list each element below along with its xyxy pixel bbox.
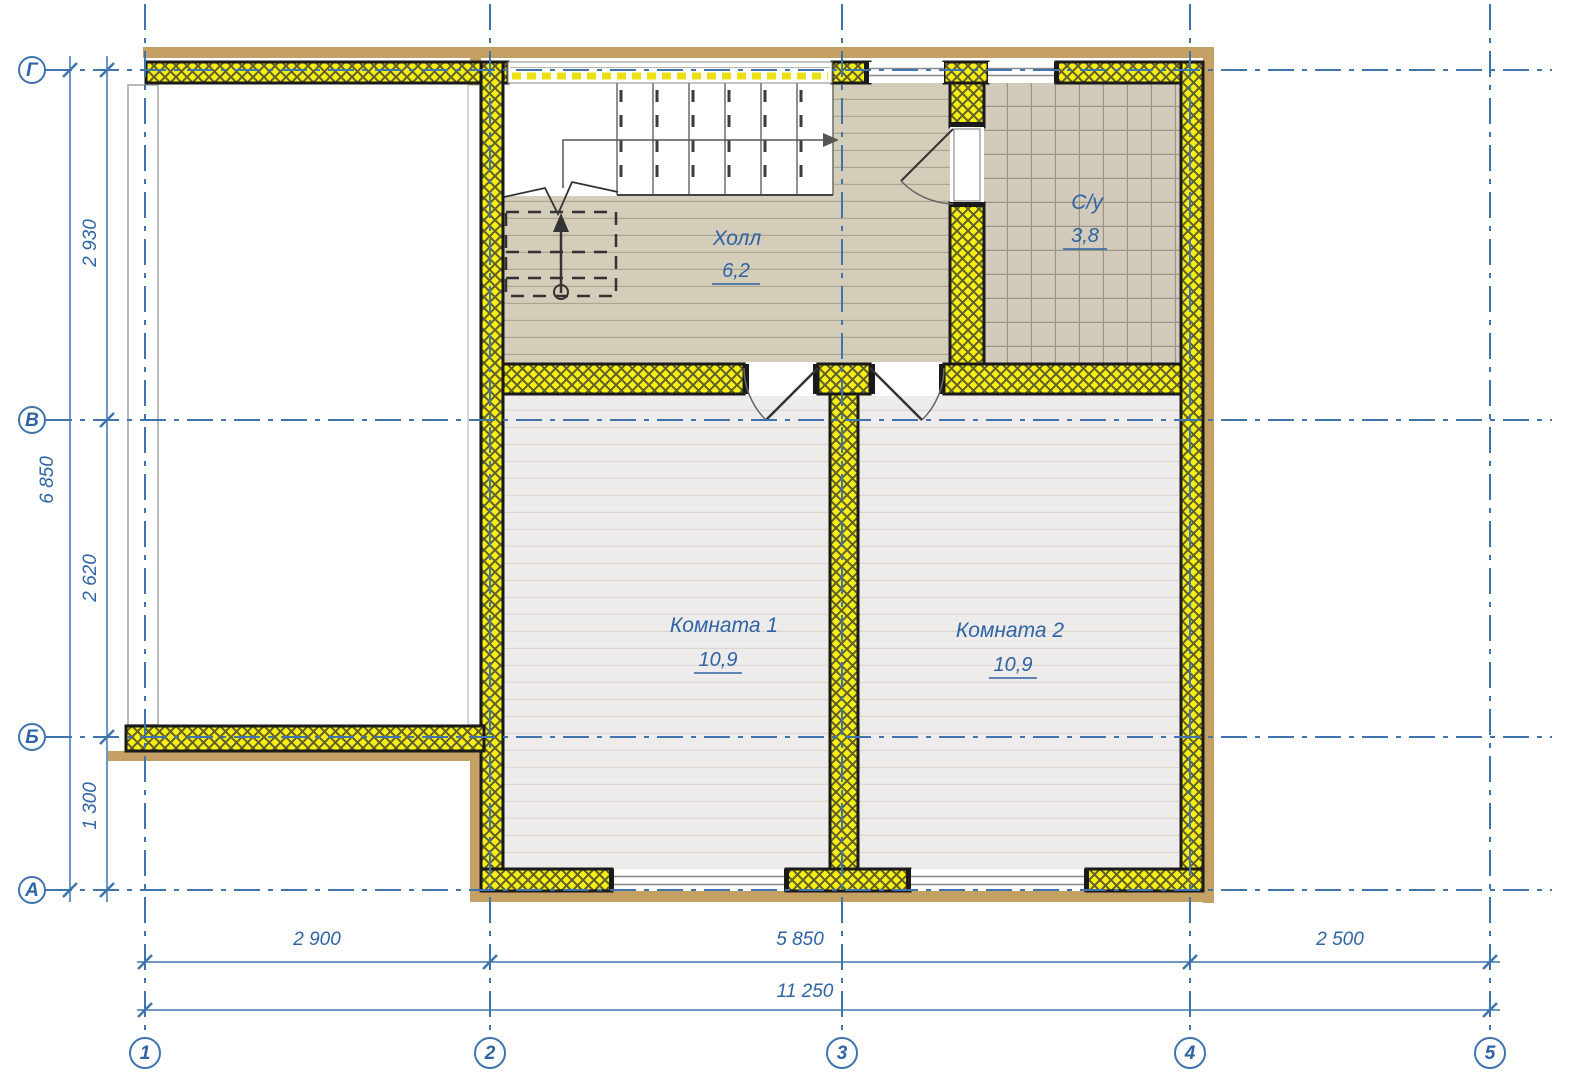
axis-label-1: 1 (140, 1043, 151, 1064)
room-label-room1: Комната 1 (670, 614, 778, 637)
door-bathroom-panel (954, 129, 980, 201)
wall-top-extension (146, 62, 508, 83)
axis-label-3: 3 (837, 1043, 848, 1064)
window-bathroom-north (988, 62, 1056, 83)
cladding-right (1203, 47, 1214, 903)
window-jamb (784, 869, 789, 891)
axis-label-в: В (25, 410, 39, 431)
wall-bottom-left (481, 869, 612, 891)
room-area-bathroom: 3,8 (1071, 225, 1099, 247)
wall-bottom-right (1086, 869, 1203, 891)
wall-bathroom-lower (950, 203, 984, 364)
lower-floor-outline (128, 85, 480, 725)
dim-bottom-seg3: 2 500 (1315, 929, 1364, 950)
room-label-hall: Холл (712, 227, 762, 250)
wall-left (481, 62, 503, 891)
dim-bottom-overall: 11 250 (777, 981, 834, 1002)
axis-label-а: А (24, 880, 39, 901)
cladding-top (143, 47, 1214, 58)
window-jamb (1084, 869, 1089, 891)
axis-label-4: 4 (1184, 1043, 1196, 1064)
axis-label-5: 5 (1485, 1043, 1496, 1064)
room-label-room2: Комната 2 (956, 619, 1064, 642)
wall-wing (126, 726, 484, 751)
wall-hall-partition-right (944, 364, 1181, 394)
floor-plan-drawing: 6 850 2 930 2 620 1 300 2 900 5 850 2 50… (0, 0, 1576, 1080)
wall-top-right (1056, 62, 1181, 83)
wall-bottom-middle (786, 869, 910, 891)
window-room2-south (910, 869, 1086, 891)
terrace-edge-right (468, 85, 480, 725)
terrace-edge-left (128, 85, 158, 725)
window-jamb (864, 62, 869, 83)
window-jamb (906, 869, 911, 891)
floor-plan-canvas: 6 850 2 930 2 620 1 300 2 900 5 850 2 50… (0, 0, 1576, 1080)
wall-hall-partition-left (503, 364, 744, 394)
axis-label-2: 2 (484, 1043, 496, 1064)
door-jamb (950, 202, 984, 207)
room-label-bathroom: С/у (1071, 191, 1104, 214)
dim-bottom-seg1: 2 900 (292, 929, 341, 950)
room1-floor (503, 394, 830, 869)
axis-label-б: Б (25, 727, 38, 748)
window-room1-south (612, 869, 786, 891)
dim-left-seg3: 1 300 (80, 782, 101, 830)
room-area-hall: 6,2 (722, 260, 750, 282)
dim-bottom-seg2: 5 850 (776, 929, 824, 950)
dim-left-seg2: 2 620 (80, 554, 101, 603)
dim-left-overall: 6 850 (37, 456, 58, 504)
wall-top-pier (944, 62, 988, 83)
dim-left-seg1: 2 930 (80, 219, 101, 268)
wall-right (1181, 62, 1203, 891)
room-area-room1: 10,9 (699, 649, 738, 671)
window-hall-north (868, 62, 944, 83)
door-jamb (950, 122, 984, 127)
wall-rooms-partition (830, 394, 858, 869)
bathroom-tile-floor (984, 83, 1183, 364)
room-area-room2: 10,9 (994, 654, 1033, 676)
wall-hall-partition-center (818, 364, 870, 394)
wall-bathroom-upper (950, 83, 984, 127)
window-jamb (1054, 62, 1059, 83)
window-jamb (609, 869, 614, 891)
axis-label-г: Г (26, 60, 39, 81)
